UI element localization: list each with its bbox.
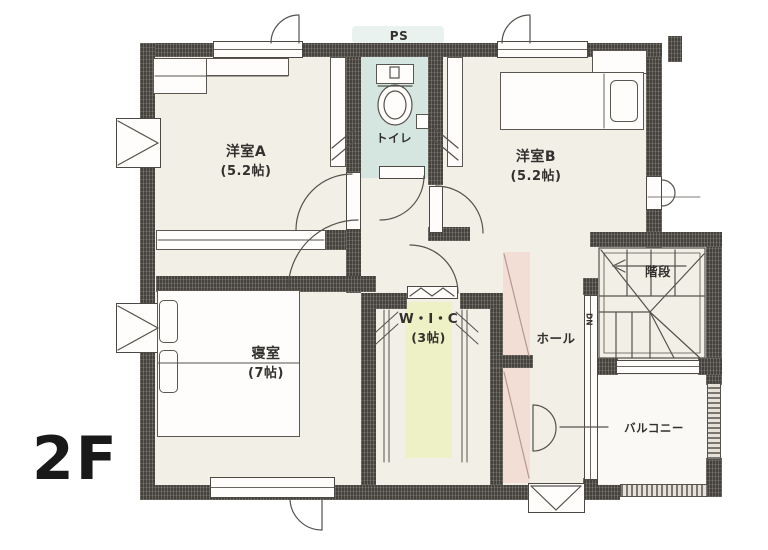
balcony-left-bottom-nib [583, 478, 598, 500]
room-a-bay-window [116, 118, 161, 168]
exterior-wall-left [140, 43, 155, 500]
room-b-tall-closet [447, 57, 463, 167]
room-b-right-door-leaf [646, 176, 662, 210]
toilet-label: トイレ [363, 130, 425, 146]
room-b-pillow [610, 80, 638, 122]
room-a-label: 洋室A (5.2帖) [196, 143, 296, 181]
toilet-left-wall [346, 57, 361, 172]
wic-top-wall-left [361, 293, 407, 309]
stairs-balcony-window [616, 360, 700, 374]
toilet-door-leaf [379, 166, 425, 179]
toilet-right-wall [428, 57, 443, 185]
bedroom-label: 寝室 (7帖) [216, 345, 316, 383]
stairs-bottom-wall-right [698, 358, 722, 375]
hall-bottom-window [528, 483, 585, 513]
exterior-wall-top-endcap [668, 36, 682, 62]
wic-label: W・I・C (3帖) [381, 310, 476, 346]
bedroom-bottom-window [210, 477, 335, 498]
balcony-right-corner-wall [706, 458, 722, 497]
room-b-right-wall [646, 57, 662, 248]
ps-label: PS [379, 28, 419, 45]
floor-plan: PS トイレ 洋室A (5.2帖) 洋室B (5.2帖) 寝室 (7帖) W・I… [0, 0, 768, 550]
bedroom-pillow-2 [159, 350, 178, 393]
closet-band-end-wall [326, 230, 346, 250]
room-a-top-window [213, 41, 303, 58]
hall-mid-nib-wall [490, 355, 533, 368]
bedroom-bay-window [116, 303, 161, 353]
wic-left-wall [361, 309, 376, 485]
room-a-door-leaf [346, 172, 361, 230]
bedroom-pillow-1 [159, 300, 178, 343]
room-a-tall-closet [330, 57, 346, 167]
stairs-top-wall [590, 232, 722, 247]
room-a-counter-deep [153, 58, 207, 94]
stairs-dn-label: DN [583, 310, 594, 328]
balcony-left-top-nib [583, 278, 598, 295]
balcony-bottom-parapet [620, 484, 708, 497]
wic-right-wall [490, 293, 503, 485]
balcony-label: バルコニー [612, 420, 696, 436]
stairs-label: 階段 [634, 263, 682, 281]
stairs-bottom-wall-left [596, 358, 618, 375]
toilet-tank [376, 64, 414, 84]
room-a-closet-band [156, 230, 326, 250]
hall-label: ホール [524, 330, 588, 348]
wic-folding-door-leaf [407, 286, 458, 299]
room-b-door-leaf [429, 186, 443, 233]
floor-number-label: 2F [32, 424, 119, 494]
room-b-label: 洋室B (5.2帖) [486, 148, 586, 186]
room-b-shelf [592, 50, 647, 74]
balcony-right-parapet [707, 383, 721, 460]
room-b-top-window [497, 41, 588, 58]
toilet-side-box [416, 114, 429, 129]
